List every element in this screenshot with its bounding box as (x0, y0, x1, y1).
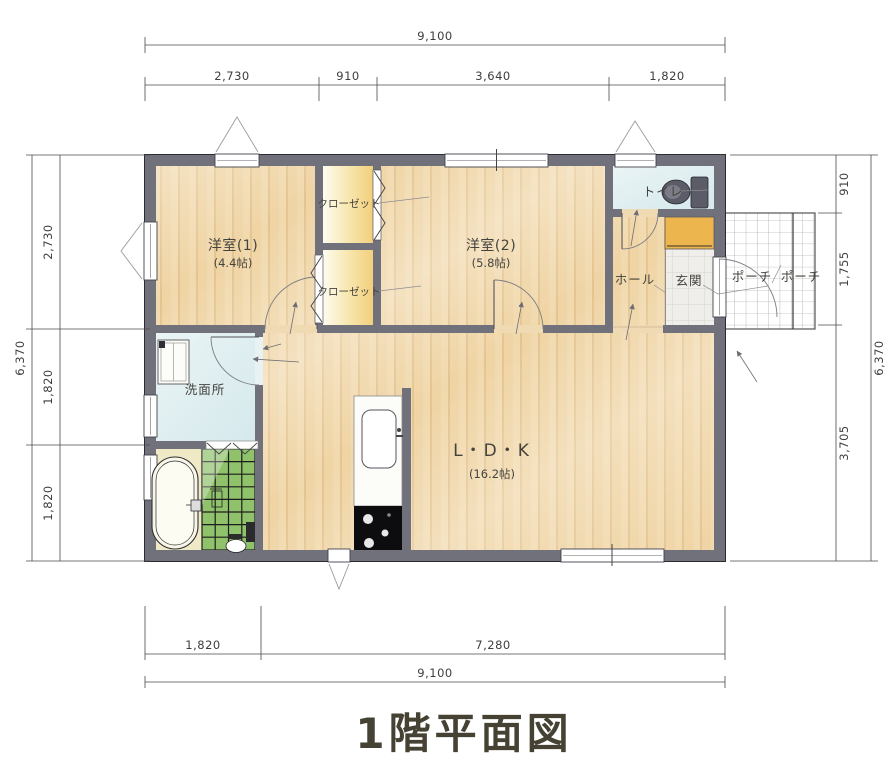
ldk-size: (16.2帖) (469, 467, 515, 481)
dim-top-seg2: 3,640 (475, 69, 510, 83)
stove (354, 506, 402, 550)
washroom-label: 洗面所 (185, 382, 226, 397)
dim-right-seg2: 3,705 (837, 425, 851, 460)
window-washroom-left (144, 395, 157, 437)
wall-washroom-right-a (255, 333, 263, 337)
wall-wash-bath-a (156, 441, 206, 449)
hall-ldk-opening (613, 325, 663, 333)
bedroom1-label: 洋室(1) (208, 237, 258, 254)
wall-washroom-right-b (255, 385, 263, 550)
dim-top-seg3: 1,820 (649, 69, 684, 83)
entrance-label: 玄関 (675, 273, 702, 288)
dim-bottom-seg1: 7,280 (475, 638, 510, 652)
hall-label: ホール (615, 272, 656, 287)
toilet-label: トイレ (643, 184, 684, 199)
dim-top-total: 9,100 (417, 29, 452, 43)
shoe-cabinet (665, 217, 714, 249)
dim-top-seg1: 910 (336, 69, 359, 83)
entrance-door-leaf (713, 257, 726, 317)
wall-closet-divider (315, 243, 381, 250)
closet-lower-label: クローゼット (318, 286, 381, 298)
porch-label-inner: ポーチ (732, 269, 773, 284)
wall-exterior-right (714, 166, 725, 550)
dim-left-seg2: 1,820 (41, 485, 55, 520)
dim-left-seg0: 2,730 (41, 224, 55, 259)
ldk-label: L・D・K (453, 441, 531, 461)
wall-toilet-bottom-b (658, 209, 714, 217)
wall-mid-c (543, 325, 605, 333)
bedroom1-size: (4.4帖) (214, 256, 253, 270)
window-bedroom1-left (121, 222, 157, 280)
wall-kitchen-partition (402, 388, 411, 550)
dim-bottom-total: 9,100 (417, 666, 452, 680)
floors (156, 166, 714, 550)
window-toilet-top (615, 121, 656, 167)
window-bedroom1-top (215, 117, 259, 167)
dim-right-seg1: 1,755 (837, 251, 851, 286)
wall-mid-b (317, 325, 494, 333)
dim-left-seg1: 1,820 (41, 369, 55, 404)
window-ldk-bottom-small (328, 549, 350, 589)
wall-hall-left (605, 166, 613, 333)
floor-plan-canvas: 洋室(1) (4.4帖) 洋室(2) (5.8帖) L・D・K (16.2帖) … (0, 0, 888, 781)
bedroom2-label: 洋室(2) (466, 237, 516, 254)
wall-toilet-bottom-a (613, 209, 622, 217)
wall-mid-d (663, 325, 714, 333)
dim-top-seg0: 2,730 (214, 69, 249, 83)
floor-plan-title: 1階平面図 (355, 709, 572, 758)
dim-right-seg0: 910 (837, 172, 851, 195)
closet-upper-label: クローゼット (318, 198, 381, 210)
kitchen-fixture (354, 396, 403, 550)
bedroom2-size: (5.8帖) (472, 256, 511, 270)
dim-right-total: 6,370 (872, 340, 886, 375)
dim-bottom-seg0: 1,820 (185, 638, 220, 652)
wall-mid-a (156, 325, 265, 333)
wall-wash-bath-b (258, 441, 263, 449)
washer-pan-fixture (158, 340, 189, 384)
dim-left-total: 6,370 (13, 340, 27, 375)
porch-label-outer: ポーチ (781, 269, 822, 284)
